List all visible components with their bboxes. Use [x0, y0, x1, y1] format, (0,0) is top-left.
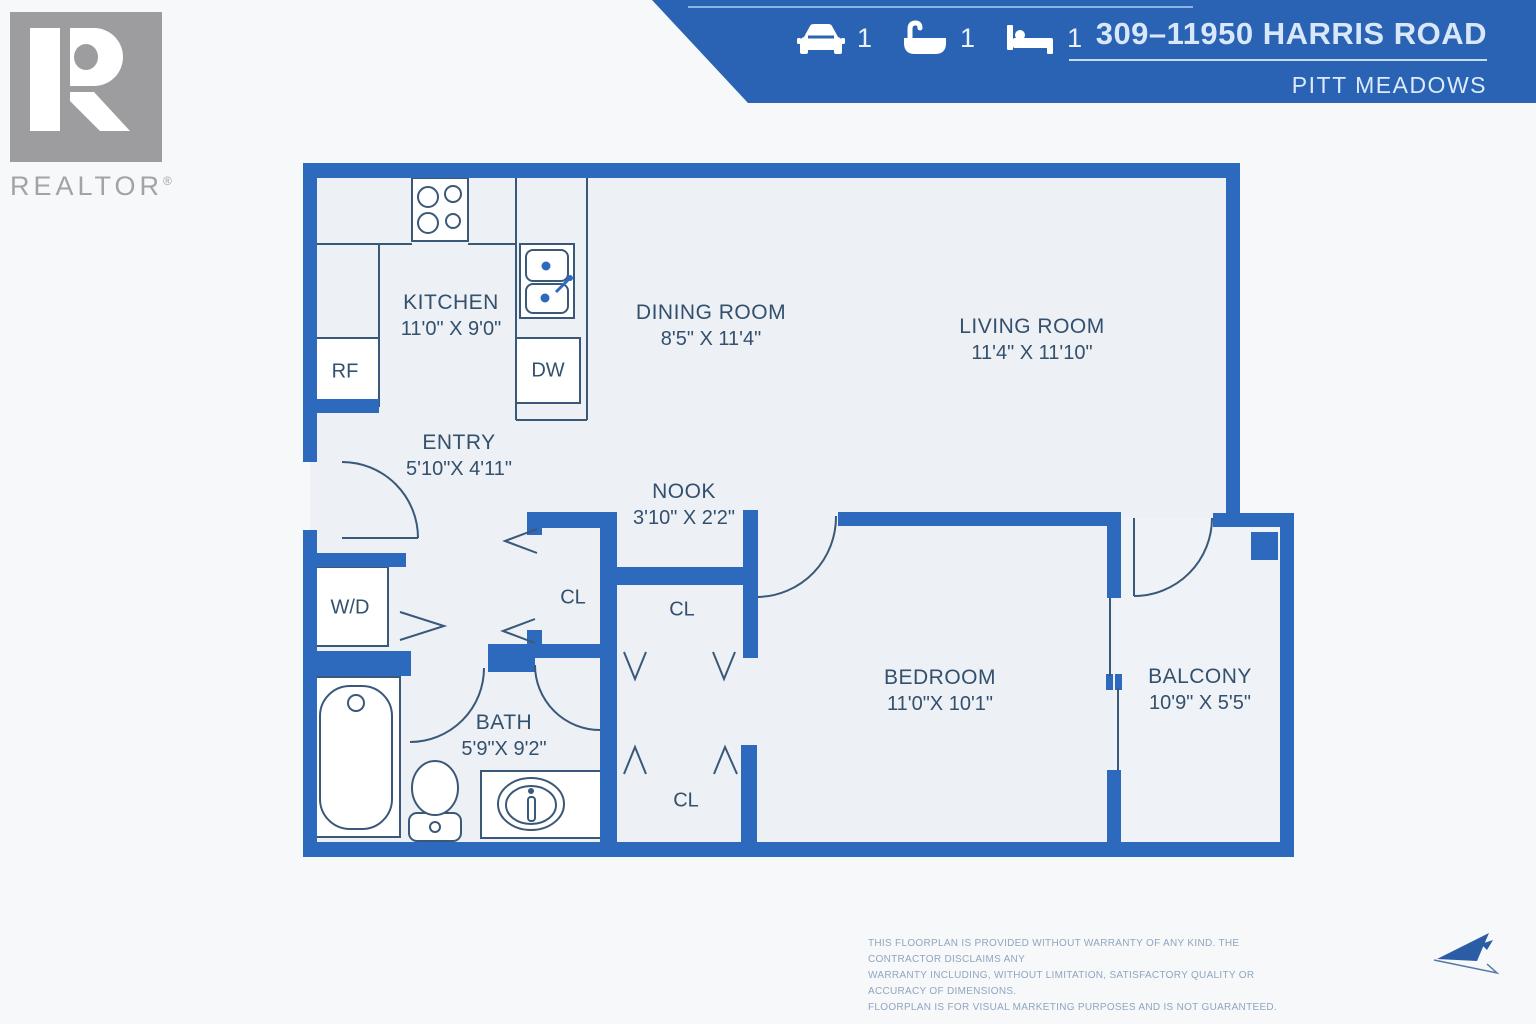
- balcony-pillar: [1251, 532, 1278, 560]
- room-label-bath: BATH 5'9"X 9'2": [461, 711, 546, 761]
- sliding-door-tick: [1106, 674, 1113, 690]
- room-label-bedroom: BEDROOM 11'0"X 10'1": [884, 666, 996, 716]
- floor-areas: [310, 170, 1287, 851]
- label-closet-hall: CL: [669, 599, 695, 622]
- vanity-sink-icon: [481, 771, 605, 838]
- floorplan-page: REALTOR® 1: [0, 0, 1536, 1024]
- label-washer-dryer: W/D: [331, 597, 370, 620]
- bathtub-shape: [312, 677, 400, 837]
- label-dishwasher: DW: [531, 360, 564, 383]
- room-label-living: LIVING ROOM 11'4" X 11'10": [959, 315, 1105, 365]
- room-label-nook: NOOK 3'10" X 2'2": [633, 480, 735, 530]
- room-label-dining: DINING ROOM 8'5" X 11'4": [636, 301, 786, 351]
- stove-icon: [412, 178, 468, 241]
- room-label-balcony: BALCONY 10'9" X 5'5": [1148, 665, 1252, 715]
- label-fridge: RF: [332, 361, 359, 384]
- sliding-door-tick: [1115, 674, 1122, 690]
- disclaimer-text: THIS FLOORPLAN IS PROVIDED WITHOUT WARRA…: [868, 936, 1278, 1016]
- room-label-entry: ENTRY 5'10"X 4'11": [406, 431, 512, 481]
- sailboat-logo: [1421, 925, 1521, 990]
- toilet-icon: [409, 761, 461, 841]
- label-closet-bedroom: CL: [673, 790, 699, 813]
- kitchen-sink-icon: [520, 244, 574, 318]
- label-closet-entry: CL: [560, 587, 586, 610]
- room-label-kitchen: KITCHEN 11'0" X 9'0": [401, 291, 501, 341]
- floorplan-drawing: [0, 0, 1536, 1024]
